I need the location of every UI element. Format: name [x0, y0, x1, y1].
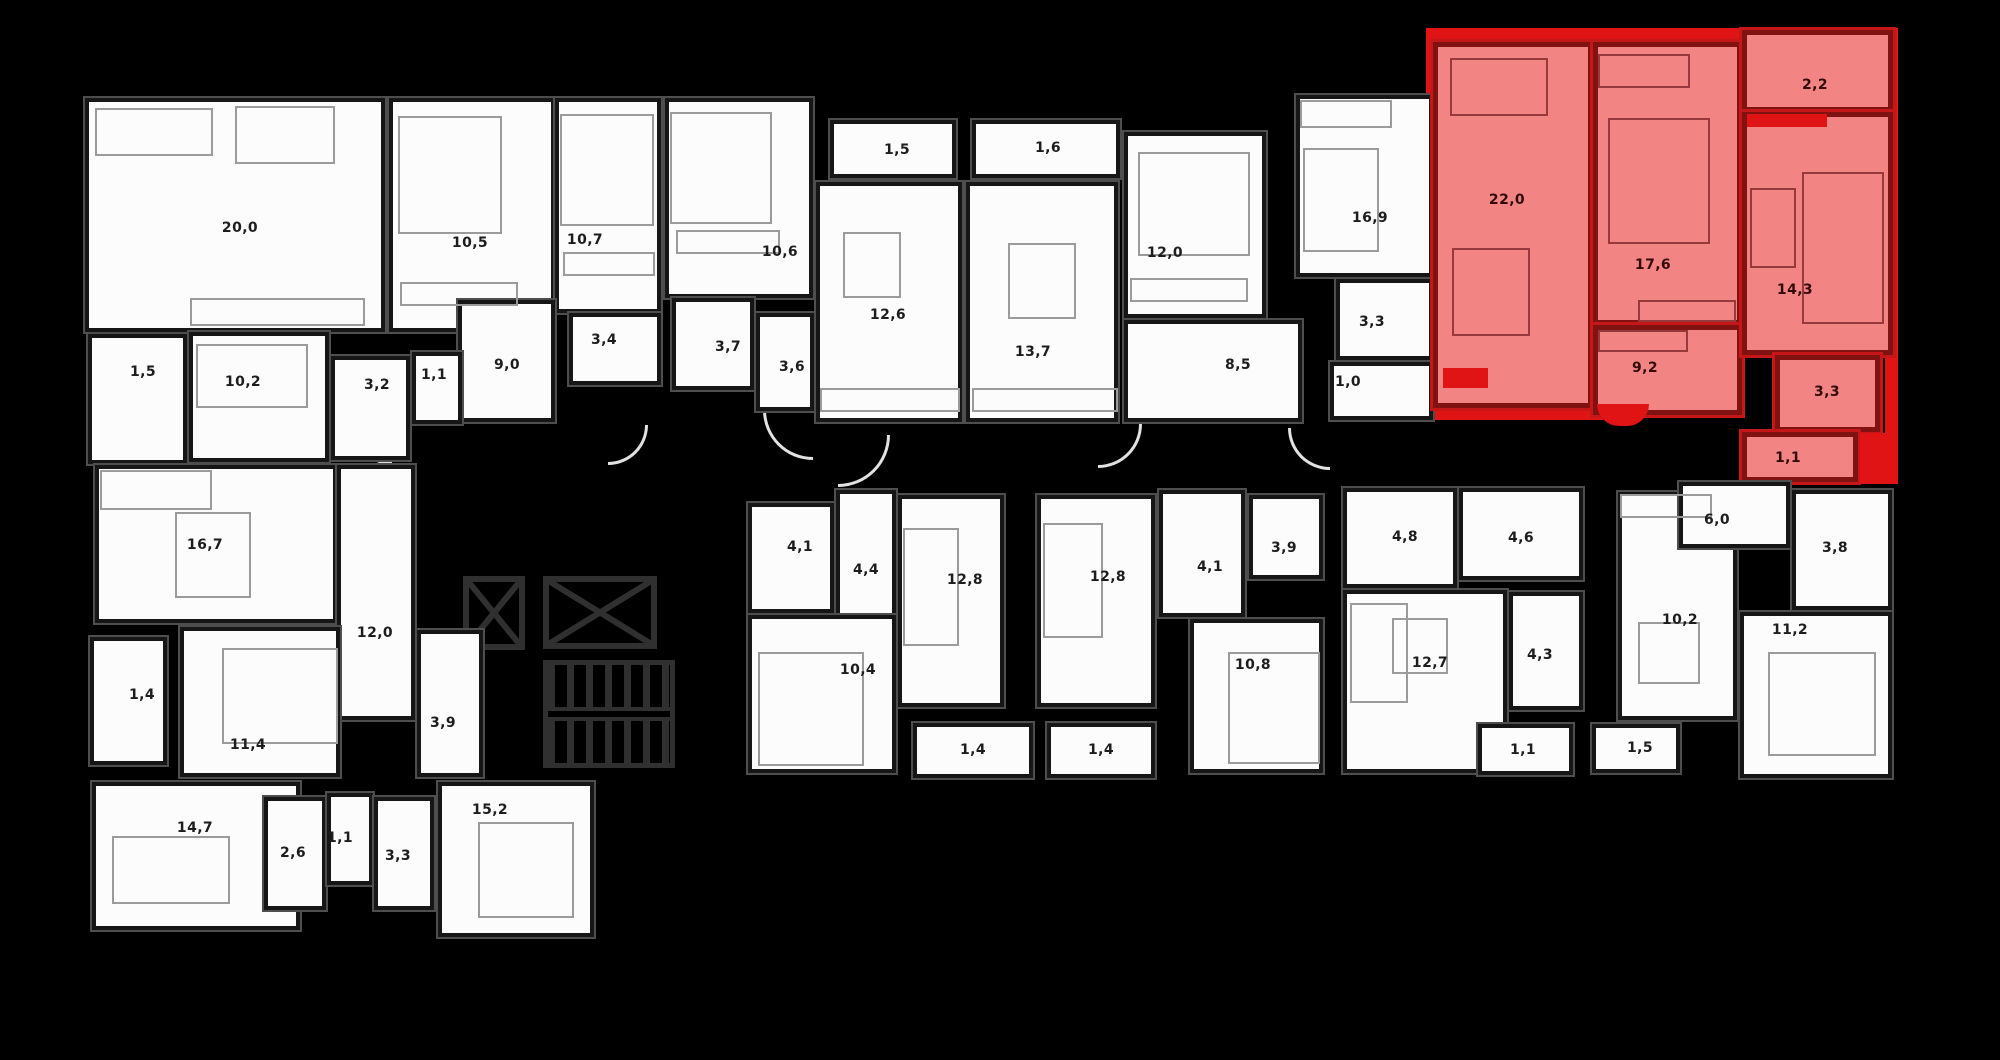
room-area-label: 11,4 [230, 737, 266, 753]
furniture-outline [400, 282, 518, 306]
furniture-outline [563, 252, 655, 276]
furniture-outline [560, 114, 654, 226]
furniture-outline [235, 106, 335, 164]
highlight-accent [1860, 433, 1893, 482]
room-area-label: 3,9 [430, 715, 456, 731]
room-area-label: 1,5 [130, 364, 156, 380]
room-area-label: 10,5 [452, 235, 488, 251]
furniture-outline [1130, 278, 1248, 302]
room-t-8-5 [1124, 320, 1302, 422]
room-area-label: 1,4 [129, 687, 155, 703]
room-area-label: 12,8 [947, 572, 983, 588]
highlight-accent [1443, 368, 1488, 388]
furniture-outline [820, 388, 960, 412]
room-t-1-0 [1330, 362, 1433, 420]
room-area-label: 12,0 [1147, 245, 1183, 261]
room-area-label: 4,1 [1197, 559, 1223, 575]
room-area-label: 1,1 [1775, 450, 1801, 466]
room-b-3-9 [417, 630, 483, 777]
furniture-outline [670, 112, 772, 224]
room-c-4-4 [836, 490, 896, 617]
floor-plan: 20,010,510,73,49,010,63,73,61,512,61,613… [0, 0, 2000, 1060]
furniture-outline [100, 470, 212, 510]
room-area-label: 3,6 [779, 359, 805, 375]
room-area-label: 10,6 [762, 244, 798, 260]
furniture-outline [1768, 652, 1876, 756]
room-area-label: 3,7 [715, 339, 741, 355]
room-area-label: 16,9 [1352, 210, 1388, 226]
room-t-1-5a [88, 334, 187, 464]
room-area-label: 1,5 [1627, 740, 1653, 756]
room-c-3-9 [1249, 495, 1323, 579]
room-area-label: 9,0 [494, 357, 520, 373]
door-arc [1098, 424, 1142, 468]
furniture-outline [1638, 622, 1700, 684]
furniture-outline [843, 232, 901, 298]
room-area-label: 1,4 [960, 742, 986, 758]
room-area-label: 1,1 [1510, 742, 1536, 758]
furniture-outline [1450, 58, 1548, 116]
furniture-outline [1638, 300, 1736, 322]
room-area-label: 14,7 [177, 820, 213, 836]
room-c-4-1a [748, 503, 834, 613]
furniture-outline [1598, 54, 1690, 88]
room-area-label: 3,4 [591, 332, 617, 348]
room-area-label: 3,8 [1822, 540, 1848, 556]
furniture-outline [1303, 148, 1379, 252]
room-area-label: 10,4 [840, 662, 876, 678]
furniture-outline [972, 388, 1118, 412]
elevator-icon [543, 576, 657, 649]
door-arc [838, 435, 890, 487]
room-area-label: 1,0 [1335, 374, 1361, 390]
room-area-label: 20,0 [222, 220, 258, 236]
room-area-label: 6,0 [1704, 512, 1730, 528]
room-area-label: 4,1 [787, 539, 813, 555]
room-area-label: 22,0 [1489, 192, 1525, 208]
highlight-accent [1597, 404, 1649, 426]
room-area-label: 4,3 [1527, 647, 1553, 663]
furniture-outline [95, 108, 213, 156]
furniture-outline [1750, 188, 1796, 268]
room-area-label: 3,3 [1814, 384, 1840, 400]
room-area-label: 10,2 [225, 374, 261, 390]
furniture-outline [112, 836, 230, 904]
room-area-label: 14,3 [1777, 282, 1813, 298]
door-arc [763, 410, 813, 460]
furniture-outline [1300, 100, 1392, 128]
room-area-label: 12,0 [357, 625, 393, 641]
furniture-outline [1620, 494, 1712, 518]
room-area-label: 4,6 [1508, 530, 1534, 546]
room-area-label: 3,3 [385, 848, 411, 864]
room-area-label: 16,7 [187, 537, 223, 553]
furniture-outline [1802, 172, 1884, 324]
room-area-label: 4,4 [853, 562, 879, 578]
room-area-label: 10,8 [1235, 657, 1271, 673]
furniture-outline [1138, 152, 1250, 256]
furniture-outline [190, 298, 365, 326]
room-area-label: 2,6 [280, 845, 306, 861]
room-t-3-2 [331, 356, 410, 460]
room-t-1-1 [412, 352, 462, 424]
room-area-label: 8,5 [1225, 357, 1251, 373]
furniture-outline [398, 116, 502, 234]
door-arc [608, 425, 648, 465]
room-area-label: 15,2 [472, 802, 508, 818]
room-area-label: 12,6 [870, 307, 906, 323]
furniture-outline [175, 512, 251, 598]
highlighted-apartment-outline [1426, 408, 1603, 420]
room-area-label: 12,8 [1090, 569, 1126, 585]
room-area-label: 4,8 [1392, 529, 1418, 545]
room-area-label: 1,4 [1088, 742, 1114, 758]
room-area-label: 3,3 [1359, 314, 1385, 330]
furniture-outline [1008, 243, 1076, 319]
room-t-3-4 [569, 313, 661, 385]
room-area-label: 1,1 [327, 830, 353, 846]
room-area-label: 11,2 [1772, 622, 1808, 638]
room-t-12-6 [816, 182, 962, 422]
room-t-3-7 [672, 298, 754, 390]
room-area-label: 12,7 [1412, 655, 1448, 671]
room-area-label: 3,2 [364, 377, 390, 393]
room-area-label: 13,7 [1015, 344, 1051, 360]
room-area-label: 17,6 [1635, 257, 1671, 273]
room-area-label: 1,1 [421, 367, 447, 383]
furniture-outline [478, 822, 574, 918]
room-c-4-1b [1159, 490, 1245, 617]
highlight-accent [1747, 114, 1827, 127]
room-area-label: 9,2 [1632, 360, 1658, 376]
room-b-12-0 [337, 465, 415, 720]
room-area-label: 1,6 [1035, 140, 1061, 156]
stairs-landing-divider [548, 707, 670, 721]
room-area-label: 1,5 [884, 142, 910, 158]
furniture-outline [222, 648, 338, 744]
room-area-label: 10,2 [1662, 612, 1698, 628]
room-area-label: 3,9 [1271, 540, 1297, 556]
room-area-label: 2,2 [1802, 77, 1828, 93]
room-area-label: 10,7 [567, 232, 603, 248]
furniture-outline [1598, 330, 1688, 352]
room-r-2-2[interactable] [1742, 30, 1893, 112]
furniture-outline [1452, 248, 1530, 336]
door-arc [1288, 428, 1330, 470]
furniture-outline [1608, 118, 1710, 244]
